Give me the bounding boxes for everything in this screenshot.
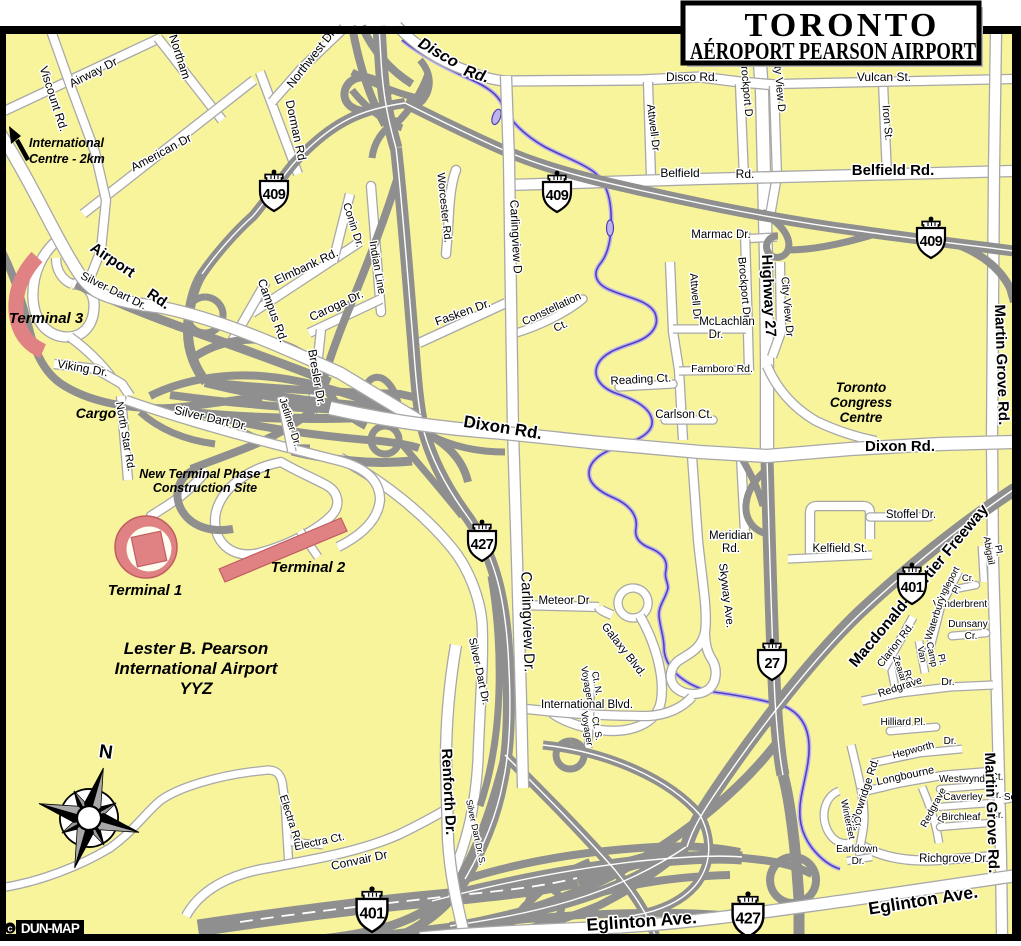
- svg-text:YYZ: YYZ: [179, 679, 213, 698]
- svg-text:Terminal 2: Terminal 2: [271, 559, 346, 576]
- svg-text:Cr.: Cr.: [965, 631, 978, 642]
- svg-text:Dunsany: Dunsany: [948, 619, 987, 630]
- svg-text:Dr.: Dr.: [944, 736, 957, 747]
- svg-text:International Airport: International Airport: [115, 659, 279, 678]
- svg-text:Cr.: Cr.: [962, 573, 974, 584]
- svg-text:Terminal 1: Terminal 1: [108, 582, 182, 599]
- svg-text:c: c: [7, 924, 12, 935]
- svg-text:Carlingview Dr.: Carlingview Dr.: [517, 571, 538, 672]
- svg-text:Birchleaf: Birchleaf: [942, 812, 981, 823]
- svg-text:Carlson Ct.: Carlson Ct.: [655, 409, 713, 421]
- svg-text:Meteor Dr: Meteor Dr: [538, 595, 589, 607]
- svg-text:Rd.: Rd.: [722, 543, 740, 555]
- svg-text:Pl.: Pl.: [992, 544, 1005, 557]
- svg-text:McLachlan: McLachlan: [699, 316, 755, 328]
- svg-text:AÉROPORT PEARSON AIRPORT: AÉROPORT PEARSON AIRPORT: [690, 39, 976, 65]
- svg-text:Dr.: Dr.: [941, 676, 954, 688]
- svg-text:409: 409: [263, 187, 286, 203]
- svg-text:409: 409: [546, 188, 569, 204]
- svg-text:Disco Rd.: Disco Rd.: [666, 70, 718, 84]
- svg-text:27: 27: [764, 656, 780, 672]
- svg-text:427: 427: [471, 537, 494, 553]
- svg-text:401: 401: [360, 906, 386, 923]
- svg-text:Dixon Rd.: Dixon Rd.: [865, 438, 935, 455]
- svg-text:Pl.: Pl.: [935, 653, 948, 666]
- svg-text:N: N: [98, 741, 115, 764]
- svg-text:Belfield Rd.: Belfield Rd.: [852, 162, 935, 179]
- svg-text:Caverley: Caverley: [943, 792, 982, 803]
- svg-text:Centre - 2km: Centre - 2km: [29, 152, 105, 166]
- svg-text:401: 401: [901, 580, 924, 596]
- svg-text:Dr.: Dr.: [709, 329, 724, 341]
- svg-text:427: 427: [736, 911, 762, 928]
- svg-text:Farnboro Rd.: Farnboro Rd.: [691, 363, 753, 375]
- svg-text:Vulcan St.: Vulcan St.: [857, 70, 911, 84]
- svg-text:Dr.: Dr.: [852, 856, 865, 867]
- svg-text:Rd.: Rd.: [736, 167, 755, 181]
- svg-text:Meridian: Meridian: [709, 530, 753, 542]
- svg-text:Marmac Dr.: Marmac Dr.: [691, 229, 750, 241]
- svg-text:Kelfield St.: Kelfield St.: [813, 543, 868, 555]
- svg-text:Earldown: Earldown: [836, 844, 878, 855]
- svg-text:Westwynd: Westwynd: [939, 774, 985, 785]
- svg-text:Belfield: Belfield: [660, 166, 699, 180]
- svg-text:Toronto: Toronto: [836, 380, 886, 395]
- svg-text:Hilliard Pl.: Hilliard Pl.: [880, 717, 925, 728]
- svg-text:Terminal 3: Terminal 3: [9, 310, 84, 327]
- svg-text:Centre: Centre: [840, 410, 883, 425]
- svg-text:Stoffel Dr.: Stoffel Dr.: [886, 509, 936, 521]
- svg-text:Cargo: Cargo: [76, 405, 117, 421]
- svg-text:New Terminal Phase 1: New Terminal Phase 1: [139, 467, 271, 481]
- svg-text:Richgrove Dr.: Richgrove Dr.: [919, 853, 989, 865]
- svg-text:409: 409: [920, 234, 943, 250]
- svg-text:Lester B. Pearson: Lester B. Pearson: [124, 639, 269, 658]
- svg-text:Congress: Congress: [830, 395, 893, 410]
- svg-text:Construction Site: Construction Site: [153, 481, 257, 495]
- svg-text:International: International: [29, 136, 105, 150]
- svg-text:DUN-MAP: DUN-MAP: [21, 921, 80, 936]
